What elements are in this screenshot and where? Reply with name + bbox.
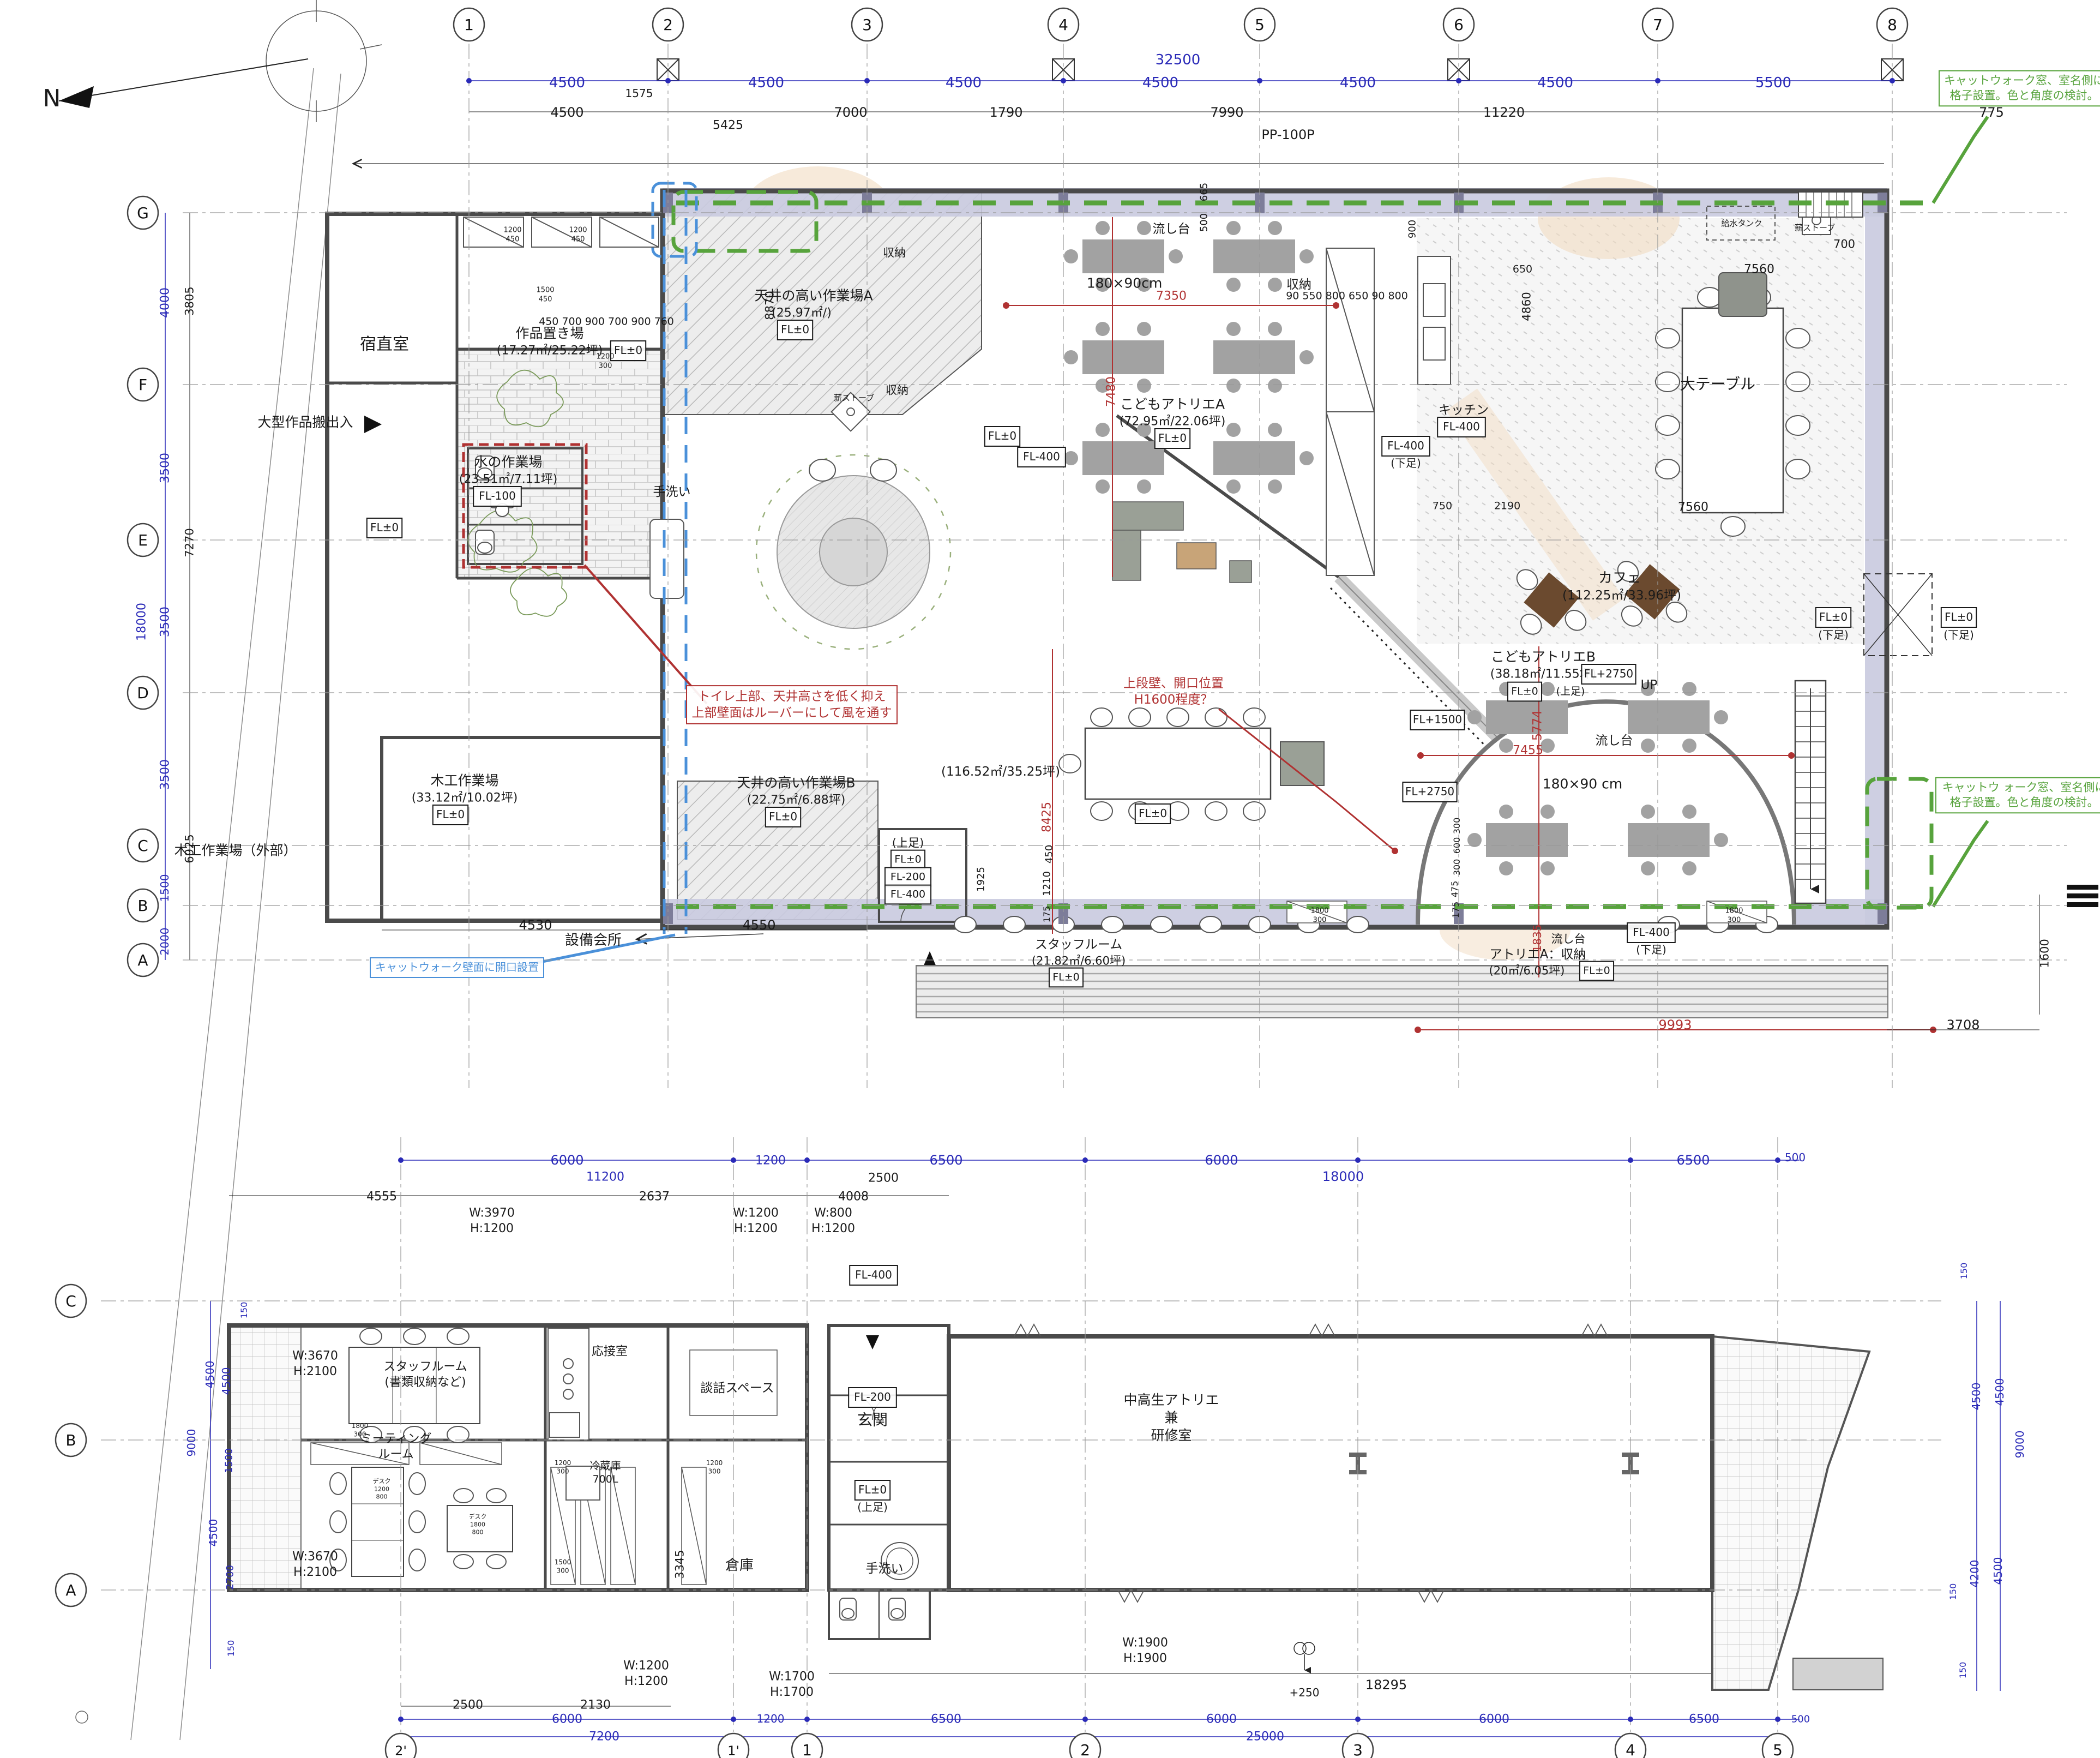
svg-text:4500: 4500 xyxy=(1142,75,1178,91)
dim: 500 xyxy=(1791,1713,1810,1725)
dim: 4500 xyxy=(1991,1557,2005,1585)
red-note: トイレ上部、天井高さを低く抑え上部壁面はルーバーにして風を通す xyxy=(687,686,897,724)
svg-text:700: 700 xyxy=(1833,237,1855,250)
win: W:1200H:1200 xyxy=(623,1659,669,1688)
svg-text:11200: 11200 xyxy=(586,1171,624,1184)
dim: 6925 xyxy=(183,834,196,863)
svg-text:木工作業場: 木工作業場 xyxy=(430,773,498,789)
room: 収納 xyxy=(883,246,906,259)
svg-text:手洗い: 手洗い xyxy=(653,485,691,499)
svg-text:1600: 1600 xyxy=(2038,939,2051,968)
svg-text:600: 600 xyxy=(1452,837,1462,854)
svg-text:(下足): (下足) xyxy=(1636,943,1666,956)
grid-bubble-label: 4 xyxy=(1626,1741,1635,1758)
svg-text:キッチン: キッチン xyxy=(1439,403,1489,417)
svg-text:アトリエA：収納: アトリエA：収納 xyxy=(1490,947,1586,962)
svg-text:流し台: 流し台 xyxy=(1596,734,1633,748)
svg-text:175: 175 xyxy=(1042,906,1052,923)
svg-text:(23.51㎡/7.11坪): (23.51㎡/7.11坪) xyxy=(459,472,558,487)
svg-text:150: 150 xyxy=(226,1640,236,1657)
label: 大型作品搬出入 xyxy=(257,415,353,430)
label: 流し台 xyxy=(1596,734,1633,748)
room: 天井の高い作業場B xyxy=(737,775,855,791)
svg-text:W:1200H:1200: W:1200H:1200 xyxy=(733,1206,779,1235)
svg-text:FL±0: FL±0 xyxy=(1052,971,1080,983)
dim: 8870 xyxy=(763,291,776,320)
dim: 150 xyxy=(226,1640,236,1657)
dim: 3500 xyxy=(159,759,172,790)
svg-text:カフェ: カフェ xyxy=(1598,570,1641,586)
svg-text:W:800H:1200: W:800H:1200 xyxy=(811,1206,855,1235)
svg-text:こどもアトリエB: こどもアトリエB xyxy=(1491,649,1596,665)
svg-text:4500: 4500 xyxy=(220,1367,233,1395)
room: 水の作業場 xyxy=(474,454,542,470)
fl: FL±0 xyxy=(611,341,646,361)
room: 木工作業場 xyxy=(430,773,498,789)
fl: FL±0 xyxy=(1155,429,1190,448)
svg-text:3500: 3500 xyxy=(159,759,172,790)
svg-text:(上足): (上足) xyxy=(857,1501,888,1514)
svg-text:5425: 5425 xyxy=(713,119,743,133)
dim: 475 xyxy=(1449,881,1460,898)
stair-up xyxy=(1795,681,1826,903)
dim: 4008 xyxy=(838,1190,869,1204)
svg-text:4530: 4530 xyxy=(519,917,552,933)
svg-text:3500: 3500 xyxy=(159,607,172,637)
dim: 7455 xyxy=(1513,744,1543,758)
dim: 1800300 xyxy=(1725,907,1743,924)
dim: 1200300 xyxy=(555,1459,571,1475)
svg-text:応接室: 応接室 xyxy=(592,1345,628,1359)
dim: 3500 xyxy=(159,453,172,483)
svg-text:(33.12㎡/10.02坪): (33.12㎡/10.02坪) xyxy=(412,791,518,805)
svg-text:(38.18㎡/11.55坪): (38.18㎡/11.55坪) xyxy=(1490,667,1597,681)
grid-bubble-label: C xyxy=(65,1292,76,1310)
dim: 6000 xyxy=(1205,1153,1238,1168)
svg-text:2500: 2500 xyxy=(868,1172,899,1185)
svg-text:1575: 1575 xyxy=(625,87,653,100)
dim: 9000 xyxy=(2013,1431,2026,1459)
svg-text:6500: 6500 xyxy=(1676,1153,1710,1168)
label: UP xyxy=(1641,678,1658,692)
svg-text:150: 150 xyxy=(239,1302,249,1319)
dim: 18295 xyxy=(1365,1677,1407,1693)
svg-text:N: N xyxy=(43,85,61,112)
dim: 7200 xyxy=(589,1730,619,1744)
dim: 1200450 xyxy=(569,226,587,243)
svg-text:FL-400: FL-400 xyxy=(1443,420,1480,433)
dim: 8425 xyxy=(1040,802,1054,832)
hall-table xyxy=(1085,728,1271,799)
dim: 300 xyxy=(1452,859,1462,876)
svg-text:3805: 3805 xyxy=(183,286,196,315)
dim: 4500 xyxy=(1537,75,1573,91)
grid-bubble-label: 2 xyxy=(1080,1741,1090,1758)
svg-text:4500: 4500 xyxy=(1970,1383,1983,1411)
svg-text:UP: UP xyxy=(1641,678,1658,692)
dim: 150 xyxy=(1958,1662,1968,1679)
svg-text:4500: 4500 xyxy=(549,75,585,91)
svg-text:(20㎡/6.05坪): (20㎡/6.05坪) xyxy=(1489,964,1565,977)
svg-text:7270: 7270 xyxy=(183,528,196,557)
dim: 6500 xyxy=(931,1713,961,1726)
svg-text:2637: 2637 xyxy=(639,1190,670,1204)
fl: (下足) xyxy=(1636,943,1666,956)
svg-text:1200450: 1200450 xyxy=(569,226,587,243)
svg-text:500: 500 xyxy=(1785,1151,1806,1164)
dim: 7000 xyxy=(834,105,867,120)
level-mark xyxy=(1294,1642,1315,1670)
dim: 450 xyxy=(1043,845,1055,863)
svg-text:FL-400: FL-400 xyxy=(1387,439,1424,452)
dim: 18000 xyxy=(135,603,149,641)
label: 薪ストーブ xyxy=(1795,223,1835,233)
dim: 11200 xyxy=(586,1171,624,1184)
dim: 150 xyxy=(1948,1583,1958,1600)
dim: 6000 xyxy=(1479,1713,1509,1726)
grid-bubble-label: 1 xyxy=(464,16,474,34)
svg-text:1200450: 1200450 xyxy=(503,226,521,243)
dim: 3805 xyxy=(183,286,196,315)
svg-text:500: 500 xyxy=(1198,213,1210,232)
dim: 6000 xyxy=(1206,1713,1237,1726)
svg-text:薪ストーブ: 薪ストーブ xyxy=(834,393,874,403)
dim: 175 xyxy=(1451,902,1461,919)
svg-text:6000: 6000 xyxy=(1206,1713,1237,1726)
svg-text:18000: 18000 xyxy=(135,603,149,641)
floor-plan-sheet: { "drawing":{ "kind":"architectural-floo… xyxy=(0,0,2100,1758)
grid-bubble-label: E xyxy=(138,531,148,549)
fl: (下足) xyxy=(1943,628,1974,641)
step xyxy=(1793,1658,1883,1690)
fl: FL±0 xyxy=(367,518,402,538)
dim: +250 xyxy=(1290,1686,1320,1699)
svg-text:(22.75㎡/6.88坪): (22.75㎡/6.88坪) xyxy=(747,793,846,807)
dim: 3345 xyxy=(673,1550,686,1579)
dim: 1200300 xyxy=(706,1459,723,1475)
fl: FL±0 xyxy=(433,805,468,825)
dim: 665 xyxy=(1198,183,1210,201)
svg-text:FL±0: FL±0 xyxy=(781,323,809,336)
dim: 500 xyxy=(1785,1151,1806,1164)
room: アトリエA：収納 xyxy=(1490,947,1586,962)
north-label: N xyxy=(43,85,61,112)
room: 作品置き場 xyxy=(515,326,583,341)
fl: FL±0 xyxy=(766,807,801,827)
svg-text:1200: 1200 xyxy=(755,1154,786,1168)
entry-arrow xyxy=(866,1335,879,1349)
dim: 4500 xyxy=(1970,1383,1983,1411)
svg-text:1790: 1790 xyxy=(989,105,1022,120)
dim: 7270 xyxy=(183,528,196,557)
svg-text:7000: 7000 xyxy=(834,105,867,120)
svg-text:(下足): (下足) xyxy=(1818,628,1849,641)
svg-text:FL-400: FL-400 xyxy=(890,889,925,901)
svg-text:FL±0: FL±0 xyxy=(614,344,642,357)
grid-bubble-label: 5 xyxy=(1255,16,1265,34)
room: 大テーブル xyxy=(1680,375,1755,393)
svg-text:W:1200H:1200: W:1200H:1200 xyxy=(623,1659,669,1688)
dim: 7350 xyxy=(1156,290,1187,303)
grid-bubble-label: 4 xyxy=(1058,16,1068,34)
svg-text:4500: 4500 xyxy=(203,1361,216,1389)
svg-text:2500: 2500 xyxy=(453,1699,483,1712)
svg-text:(25.97㎡/): (25.97㎡/) xyxy=(772,306,832,320)
svg-text:FL-400: FL-400 xyxy=(1633,926,1670,939)
grid-bubble-label: B xyxy=(137,897,148,915)
dim: 175 xyxy=(1042,906,1052,923)
svg-text:FL-400: FL-400 xyxy=(1023,450,1060,463)
section-marks xyxy=(2067,885,2098,907)
dim: 4500 xyxy=(203,1361,216,1389)
label: 180×90cm xyxy=(1087,275,1163,291)
svg-text:4555: 4555 xyxy=(366,1190,397,1204)
dim: 4500 xyxy=(550,105,583,120)
terrace xyxy=(1712,1336,1869,1690)
label: 薪ストーブ xyxy=(834,393,874,403)
svg-text:1800300: 1800300 xyxy=(1725,907,1743,924)
dim: 2190 xyxy=(1494,500,1520,512)
dim: 4500 xyxy=(1340,75,1376,91)
svg-text:FL-100: FL-100 xyxy=(479,489,516,502)
dim: 2500 xyxy=(868,1172,899,1185)
dim: 6000 xyxy=(552,1713,582,1726)
svg-text:150: 150 xyxy=(1948,1583,1958,1600)
svg-text:FL±0: FL±0 xyxy=(1583,965,1610,977)
dim: 25000 xyxy=(1246,1730,1284,1744)
svg-text:500: 500 xyxy=(1791,1713,1810,1725)
svg-text:3500: 3500 xyxy=(159,453,172,483)
dim: 4500 xyxy=(207,1519,220,1547)
svg-text:2130: 2130 xyxy=(580,1699,611,1712)
grid-bubble-label: 2' xyxy=(395,1743,407,1758)
carry-in-arrow xyxy=(364,416,382,433)
svg-text:450 700 900 700 900 760: 450 700 900 700 900 760 xyxy=(539,316,674,328)
svg-text:FL±0: FL±0 xyxy=(1945,610,1973,623)
svg-text:18295: 18295 xyxy=(1365,1677,1407,1693)
svg-text:6000: 6000 xyxy=(1205,1153,1238,1168)
svg-text:1210: 1210 xyxy=(1041,871,1052,896)
hand-wash-counter xyxy=(650,519,684,598)
svg-text:4860: 4860 xyxy=(1520,292,1533,321)
dim: 1200 xyxy=(757,1712,785,1725)
fl: FL±0 xyxy=(891,850,925,869)
svg-text:6500: 6500 xyxy=(1689,1713,1719,1726)
dim: 6500 xyxy=(1676,1153,1710,1168)
room: 宿直室 xyxy=(360,335,409,354)
svg-text:750: 750 xyxy=(1433,500,1452,512)
svg-text:流し台: 流し台 xyxy=(1551,932,1586,945)
svg-text:FL-200: FL-200 xyxy=(854,1390,891,1403)
win: W:1900H:1900 xyxy=(1122,1636,1168,1665)
dim: 4500 xyxy=(748,75,784,91)
svg-text:4500: 4500 xyxy=(946,75,982,91)
win: W:1200H:1200 xyxy=(733,1206,779,1235)
dim: 2637 xyxy=(639,1190,670,1204)
svg-text:FL+2750: FL+2750 xyxy=(1584,667,1633,680)
grid-bubble-label: 1 xyxy=(802,1741,812,1758)
grid-bubble-label: 2 xyxy=(663,16,673,34)
lower-plan xyxy=(229,1324,1883,1690)
svg-text:(下足): (下足) xyxy=(1391,457,1421,470)
area: (72.95㎡/22.06坪) xyxy=(1120,415,1226,429)
svg-text:180×90 cm: 180×90 cm xyxy=(1543,776,1623,792)
svg-text:6500: 6500 xyxy=(929,1153,962,1168)
label: 流し台 xyxy=(1153,222,1190,236)
svg-text:150: 150 xyxy=(1959,1263,1969,1280)
svg-text:4000: 4000 xyxy=(159,287,172,318)
dim: 4200 xyxy=(1968,1560,1981,1588)
win: W:1700H:1700 xyxy=(769,1670,815,1699)
svg-text:4500: 4500 xyxy=(1340,75,1376,91)
svg-text:180×90cm: 180×90cm xyxy=(1087,275,1163,291)
area: (21.82㎡/6.60坪) xyxy=(1032,954,1126,967)
dim: 1200450 xyxy=(503,226,521,243)
area: (23.51㎡/7.11坪) xyxy=(459,472,558,487)
room: こどもアトリエA xyxy=(1120,397,1225,412)
dim: 5500 xyxy=(1755,75,1791,91)
grid-bubble-label: G xyxy=(137,204,149,222)
grid-bubble-label: 3 xyxy=(1353,1741,1363,1758)
dim: 4555 xyxy=(366,1190,397,1204)
dim: 500 xyxy=(1198,213,1210,232)
dim: 1575 xyxy=(625,87,653,100)
svg-text:775: 775 xyxy=(1979,105,2004,120)
room: 玄関 xyxy=(857,1411,888,1429)
svg-text:宿直室: 宿直室 xyxy=(360,335,409,354)
svg-text:1500: 1500 xyxy=(158,874,171,902)
fl: (下足) xyxy=(1818,628,1849,641)
room: キッチン xyxy=(1439,403,1489,417)
svg-text:1200: 1200 xyxy=(757,1712,785,1725)
svg-text:650: 650 xyxy=(1513,263,1532,275)
fl: FL+1500 xyxy=(1410,710,1464,730)
area: (22.75㎡/6.88坪) xyxy=(747,793,846,807)
fl: FL±0 xyxy=(985,427,1020,446)
svg-text:給水タンク: 給水タンク xyxy=(1721,219,1762,229)
dim: 2000 xyxy=(158,928,171,956)
dim: 9000 xyxy=(185,1429,198,1457)
area: (116.52㎡/35.25坪) xyxy=(941,765,1060,779)
dim: 1200 xyxy=(755,1154,786,1168)
area: (20㎡/6.05坪) xyxy=(1489,964,1565,977)
svg-text:4500: 4500 xyxy=(1993,1378,2006,1406)
entrance-mark xyxy=(923,951,936,967)
fl: FL±0 xyxy=(855,1480,890,1500)
svg-text:2000: 2000 xyxy=(158,928,171,956)
svg-text:W:1700H:1700: W:1700H:1700 xyxy=(769,1670,815,1699)
big-table xyxy=(1682,308,1783,513)
dim: 1790 xyxy=(989,105,1022,120)
svg-text:475: 475 xyxy=(1449,881,1460,898)
dim: 7480 xyxy=(1105,376,1118,407)
dim: 4500 xyxy=(549,75,585,91)
svg-text:32500: 32500 xyxy=(1156,52,1201,68)
svg-text:7560: 7560 xyxy=(1744,263,1774,277)
dim: 7560 xyxy=(1744,263,1774,277)
fl: FL-200 xyxy=(849,1388,896,1407)
svg-text:300: 300 xyxy=(1452,818,1462,835)
svg-text:FL±0: FL±0 xyxy=(894,854,922,866)
svg-text:7480: 7480 xyxy=(1105,376,1118,407)
dim: 1200300 xyxy=(596,352,614,370)
svg-text:FL+2750: FL+2750 xyxy=(1405,785,1454,798)
svg-text:150: 150 xyxy=(1958,1662,1968,1679)
dim: 1500300 xyxy=(555,1558,571,1575)
area: (112.25㎡/33.96坪) xyxy=(1562,589,1681,603)
label: 設備会所 xyxy=(565,932,622,949)
svg-text:+250: +250 xyxy=(1290,1686,1320,1699)
svg-text:(下足): (下足) xyxy=(1943,628,1974,641)
wc-annex xyxy=(840,1598,905,1620)
dim: 1925 xyxy=(975,867,986,892)
svg-text:4500: 4500 xyxy=(550,105,583,120)
svg-text:450: 450 xyxy=(1043,845,1055,863)
svg-text:175: 175 xyxy=(1451,902,1461,919)
svg-text:1800300: 1800300 xyxy=(352,1422,369,1438)
svg-text:1500450: 1500450 xyxy=(536,286,554,303)
grid-bubble-label: A xyxy=(65,1581,76,1599)
svg-text:1200300: 1200300 xyxy=(706,1459,723,1475)
dim: 5425 xyxy=(713,119,743,133)
svg-text:4500: 4500 xyxy=(207,1519,220,1547)
fl: FL-400 xyxy=(850,1265,898,1285)
fl: FL±0 xyxy=(1135,804,1170,824)
svg-text:7990: 7990 xyxy=(1210,105,1243,120)
dim: 4860 xyxy=(1520,292,1533,321)
fl: FL+2750 xyxy=(1581,664,1635,684)
fl: FL±0 xyxy=(1508,682,1542,701)
fl: FL±0 xyxy=(1816,608,1851,627)
svg-text:(上足): (上足) xyxy=(1556,686,1585,698)
dim: 4500 xyxy=(1993,1378,2006,1406)
dim: 4500 xyxy=(220,1367,233,1395)
svg-text:作品置き場: 作品置き場 xyxy=(515,326,583,341)
svg-text:2700: 2700 xyxy=(224,1565,236,1590)
braced-columns xyxy=(657,59,1903,81)
grid-bubble-label: 6 xyxy=(1454,16,1464,34)
svg-text:FL±0: FL±0 xyxy=(769,810,797,823)
svg-text:大テーブル: 大テーブル xyxy=(1680,375,1755,393)
north-arrowhead xyxy=(59,86,94,108)
svg-text:(116.52㎡/35.25坪): (116.52㎡/35.25坪) xyxy=(941,765,1060,779)
svg-text:6500: 6500 xyxy=(931,1713,961,1726)
fl: FL-400 xyxy=(1437,417,1485,437)
dim: 775 xyxy=(1979,105,2004,120)
svg-text:6925: 6925 xyxy=(183,834,196,863)
grid-bubble-label: 7 xyxy=(1653,16,1663,34)
svg-text:(17.27㎡/25.22坪): (17.27㎡/25.22坪) xyxy=(497,344,603,358)
grid-bubble-label: 3 xyxy=(862,16,872,34)
svg-text:1925: 1925 xyxy=(975,867,986,892)
svg-text:4500: 4500 xyxy=(1991,1557,2005,1585)
label: 手洗い xyxy=(866,1562,904,1576)
dim: 4000 xyxy=(159,287,172,318)
dim: 1500 xyxy=(223,1448,234,1473)
dim: 7560 xyxy=(1678,501,1708,514)
svg-text:FL±0: FL±0 xyxy=(1139,807,1167,820)
dim: 1800300 xyxy=(352,1422,369,1438)
dim: 2700 xyxy=(224,1565,236,1590)
svg-text:7200: 7200 xyxy=(589,1730,619,1744)
blue-note: キャットウォーク壁面に開口設置 xyxy=(370,958,544,977)
dim: 1500 xyxy=(158,874,171,902)
sofa xyxy=(1719,273,1767,316)
label: 給水タンク xyxy=(1721,219,1762,229)
green-note: キャットウ ォーク窓、室名側に格子設置。色と角度の検討。 xyxy=(1936,778,2100,813)
svg-text:FL±0: FL±0 xyxy=(436,808,465,821)
grid-bubble-label: D xyxy=(137,684,149,702)
